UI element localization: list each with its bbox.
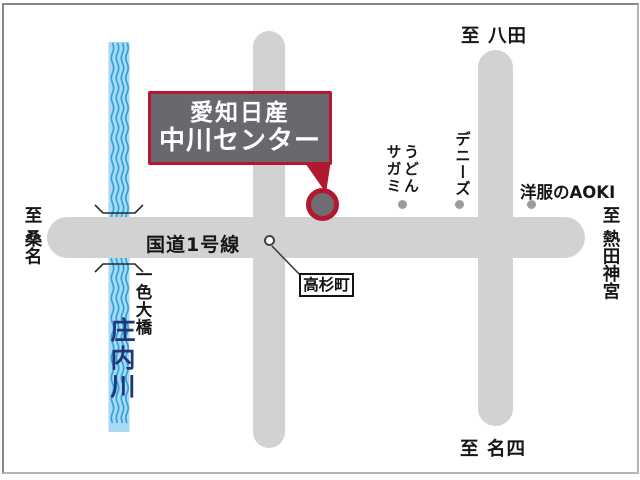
destination-name-line2: 中川センター xyxy=(159,126,321,156)
map-canvas: 至 八田 至 名四 至 桑名 至 熱田神宮 国道1号線 庄内川 一色大橋 うどん… xyxy=(0,0,640,480)
destination-box: 愛知日産 中川センター xyxy=(148,91,332,165)
direction-label-kuwana: 至 桑名 xyxy=(20,206,45,265)
direction-label-hatta: 至 八田 xyxy=(461,22,527,48)
poi-dot-aoki-icon xyxy=(527,200,536,209)
route1-label: 国道1号線 xyxy=(146,230,240,257)
intersection-marker-icon xyxy=(264,235,275,246)
direction-label-meishi: 至 名四 xyxy=(460,435,526,461)
bridge-symbol-top-icon xyxy=(95,205,143,213)
poi-label-udon-sagami: うどん サガミ xyxy=(384,144,419,195)
poi-dot-udon-sagami-icon xyxy=(398,200,407,209)
poi-label-aoki: 洋服のAOKI xyxy=(520,179,615,203)
right-vertical-road xyxy=(478,50,513,426)
bridge-name-label: 一色大橋 xyxy=(130,266,154,336)
takasugi-cho-callout: 高杉町 xyxy=(299,273,354,297)
direction-label-atsuta-jingu: 至 熱田神宮 xyxy=(598,206,623,300)
destination-name-line1: 愛知日産 xyxy=(190,100,290,126)
poi-dot-dennys-icon xyxy=(455,200,464,209)
destination-marker-icon xyxy=(306,188,339,221)
poi-label-dennys: デニーズ xyxy=(451,131,473,197)
